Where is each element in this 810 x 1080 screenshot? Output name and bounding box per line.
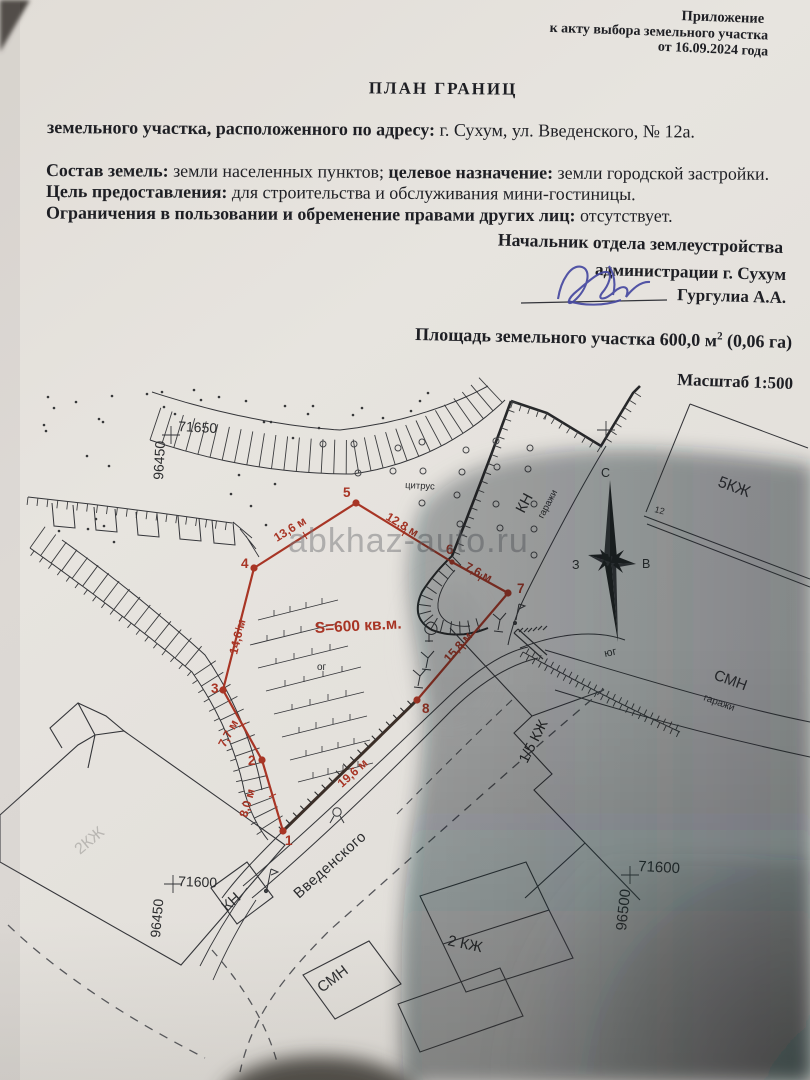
svg-text:Масштаб 1:500: Масштаб 1:500	[677, 370, 794, 393]
svg-text:ог: ог	[317, 662, 327, 673]
svg-text:Цель предоставления: для строи: Цель предоставления: для строительства и…	[46, 181, 636, 204]
svg-text:2: 2	[248, 753, 256, 768]
svg-text:Состав земель: земли населенн: Состав земель: земли населенных пунктов;…	[46, 160, 769, 184]
svg-text:1: 1	[285, 833, 293, 848]
svg-text:цитрус: цитрус	[405, 480, 435, 493]
svg-text:71600: 71600	[178, 873, 218, 890]
svg-text:5: 5	[343, 485, 351, 500]
svg-text:71650: 71650	[178, 418, 218, 436]
svg-text:ПЛАН ГРАНИЦ: ПЛАН ГРАНИЦ	[369, 78, 518, 98]
svg-text:Ограничения в пользовании и об: Ограничения в пользовании и обременение …	[46, 203, 673, 226]
svg-text:3: 3	[211, 681, 219, 696]
svg-text:Гургулиа А.А.: Гургулиа А.А.	[677, 285, 787, 307]
svg-text:96450: 96450	[150, 440, 168, 480]
svg-text:Приложение: Приложение	[681, 8, 765, 27]
svg-text:4: 4	[241, 556, 249, 571]
